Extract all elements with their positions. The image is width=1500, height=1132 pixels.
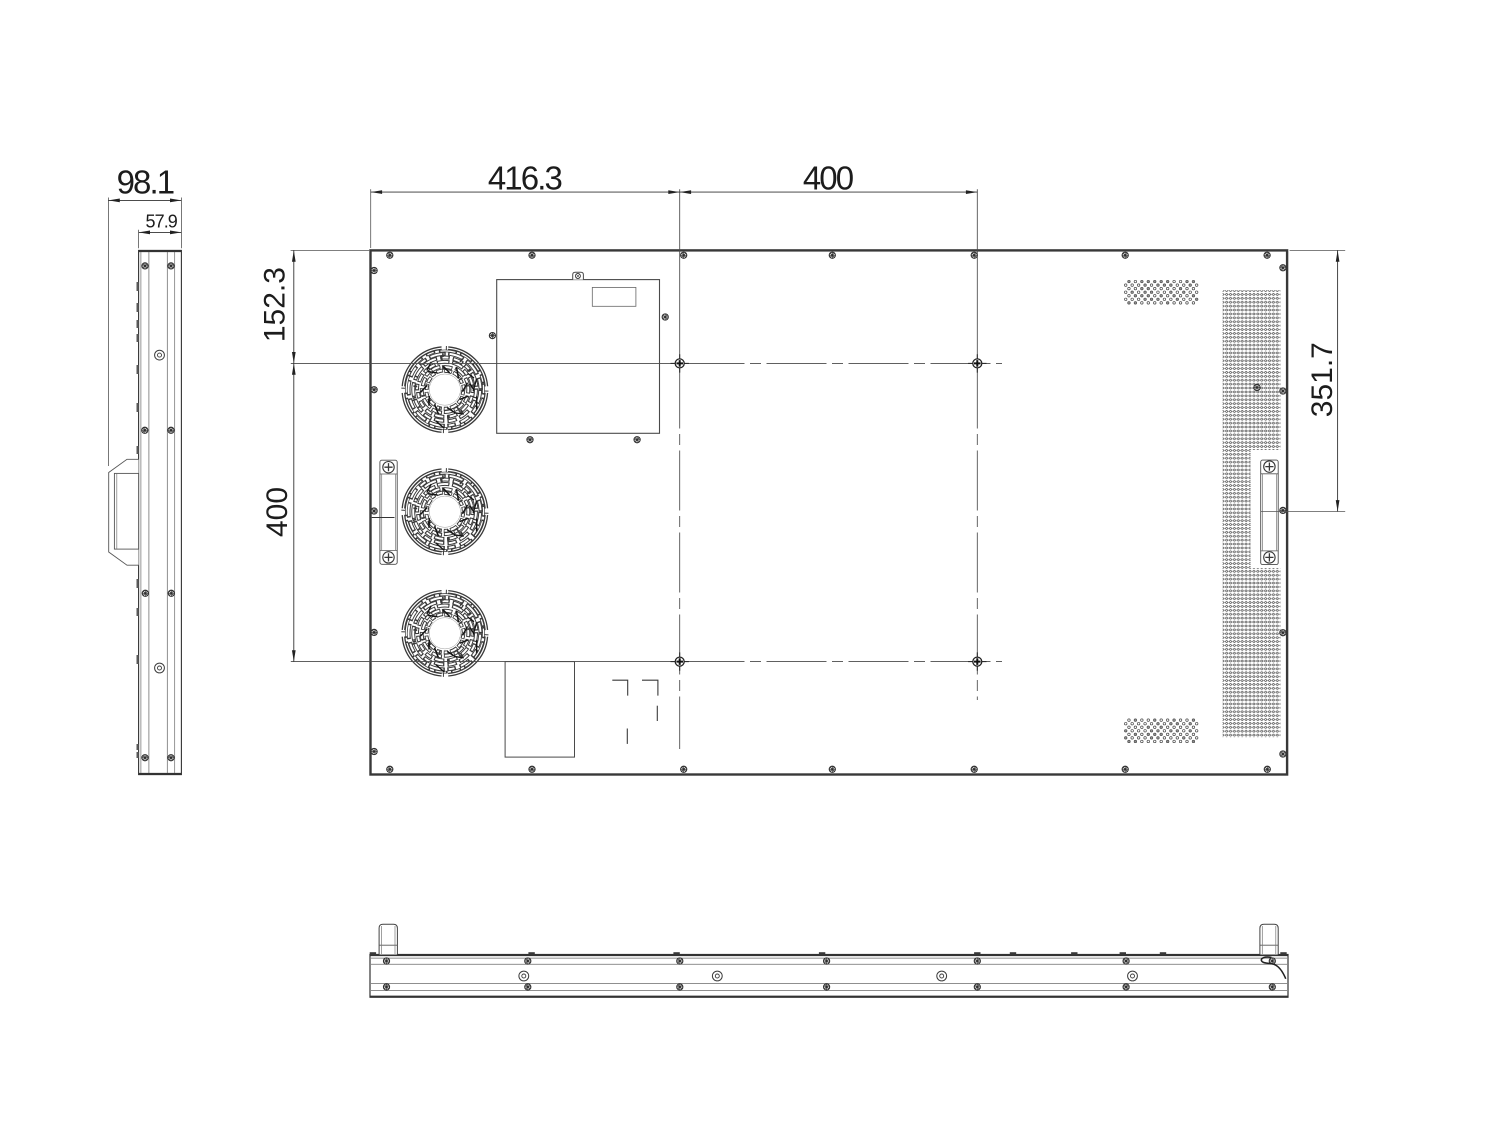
svg-text:57.9: 57.9 bbox=[145, 211, 177, 231]
svg-text:416.3: 416.3 bbox=[488, 159, 562, 196]
svg-text:400: 400 bbox=[261, 487, 294, 537]
svg-text:98.1: 98.1 bbox=[117, 164, 174, 201]
svg-text:351.7: 351.7 bbox=[1306, 342, 1339, 417]
svg-text:400: 400 bbox=[803, 159, 854, 196]
svg-text:152.3: 152.3 bbox=[259, 267, 292, 342]
